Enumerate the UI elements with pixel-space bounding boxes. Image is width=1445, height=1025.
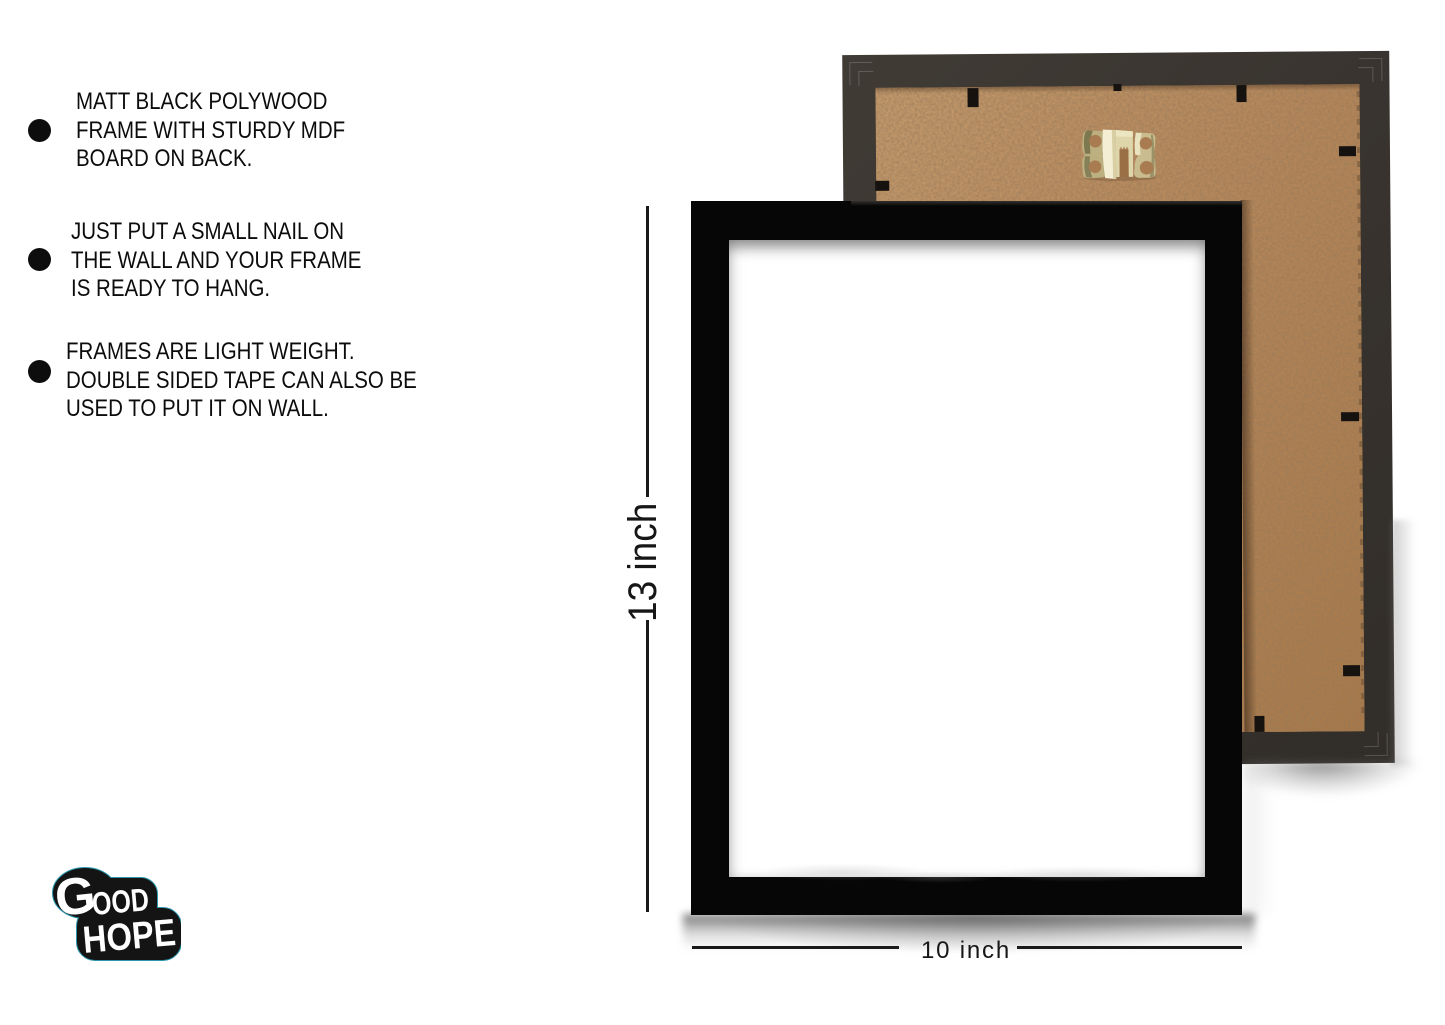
svg-text:HOPE: HOPE xyxy=(81,912,177,962)
